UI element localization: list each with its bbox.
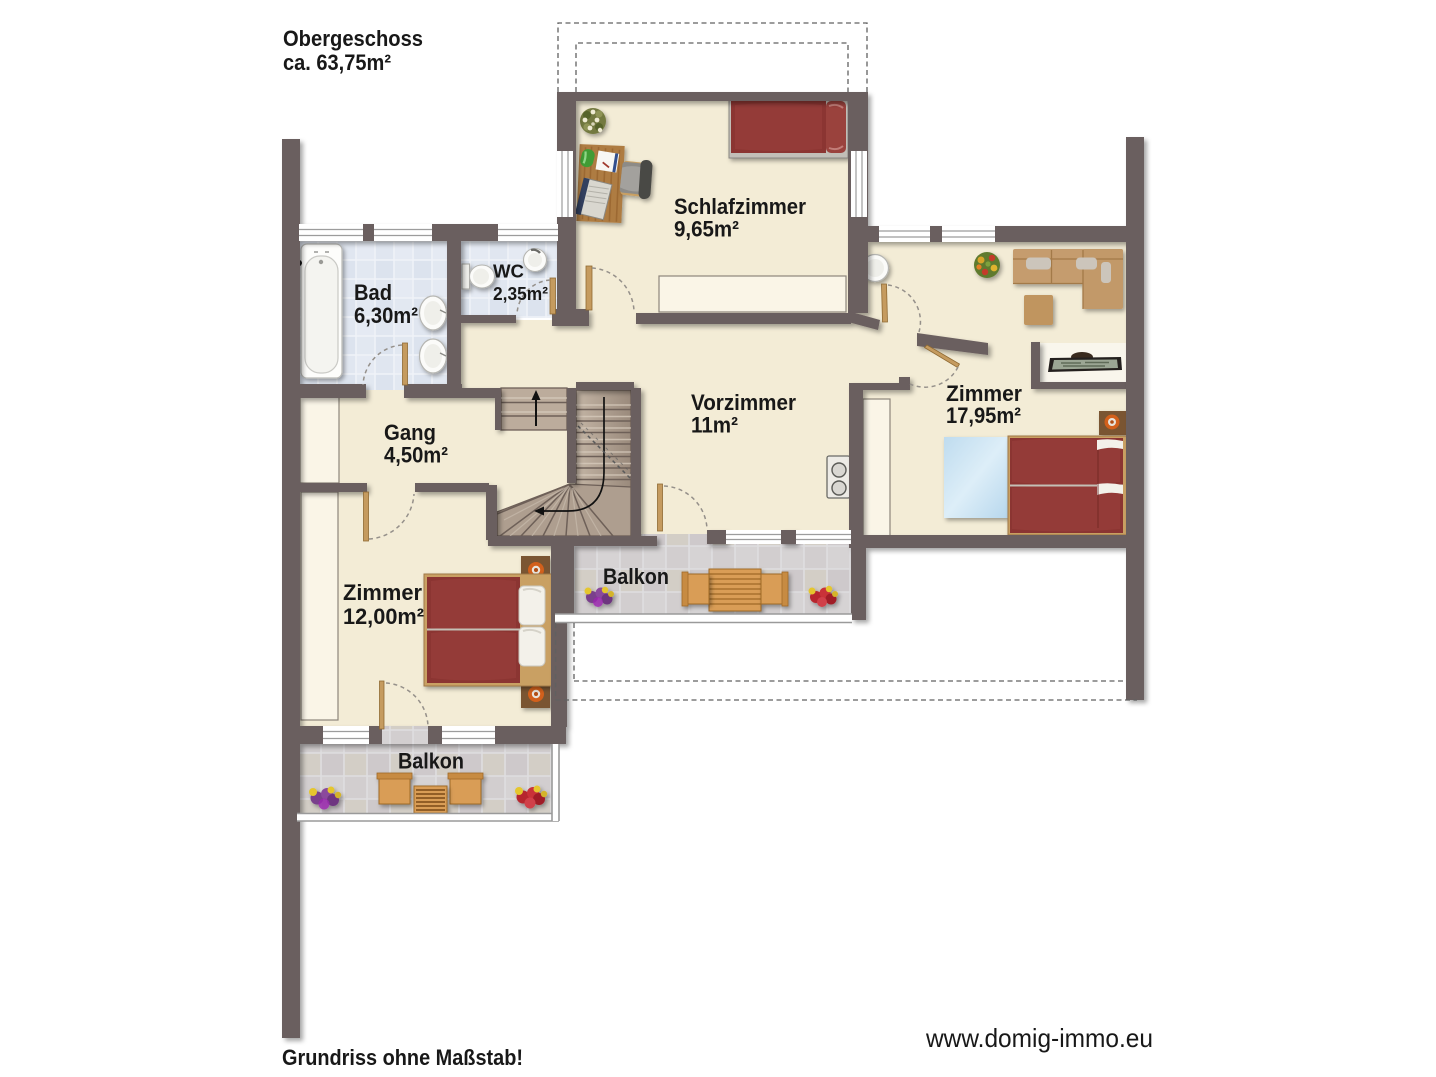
svg-text:6,30m²: 6,30m² [354,303,418,328]
svg-text:4,50m²: 4,50m² [384,443,448,468]
svg-text:Schlafzimmer: Schlafzimmer [674,194,806,219]
svg-text:Balkon: Balkon [603,564,669,589]
svg-text:Bad: Bad [354,280,392,305]
svg-text:Zimmer: Zimmer [343,580,422,605]
svg-text:Grundriss ohne Maßstab!: Grundriss ohne Maßstab! [282,1045,523,1070]
svg-text:17,95m²: 17,95m² [946,403,1021,428]
svg-text:2,35m²: 2,35m² [493,283,548,304]
svg-text:ca. 63,75m²: ca. 63,75m² [283,50,391,75]
svg-text:Obergeschoss: Obergeschoss [283,26,423,51]
svg-text:Balkon: Balkon [398,749,464,774]
svg-text:12,00m²: 12,00m² [343,604,424,629]
svg-text:11m²: 11m² [691,413,738,438]
svg-text:www.domig-immo.eu: www.domig-immo.eu [925,1023,1153,1053]
svg-text:Vorzimmer: Vorzimmer [691,390,796,415]
svg-text:WC: WC [493,261,524,282]
svg-text:Gang: Gang [384,420,436,445]
svg-text:9,65m²: 9,65m² [674,217,739,242]
